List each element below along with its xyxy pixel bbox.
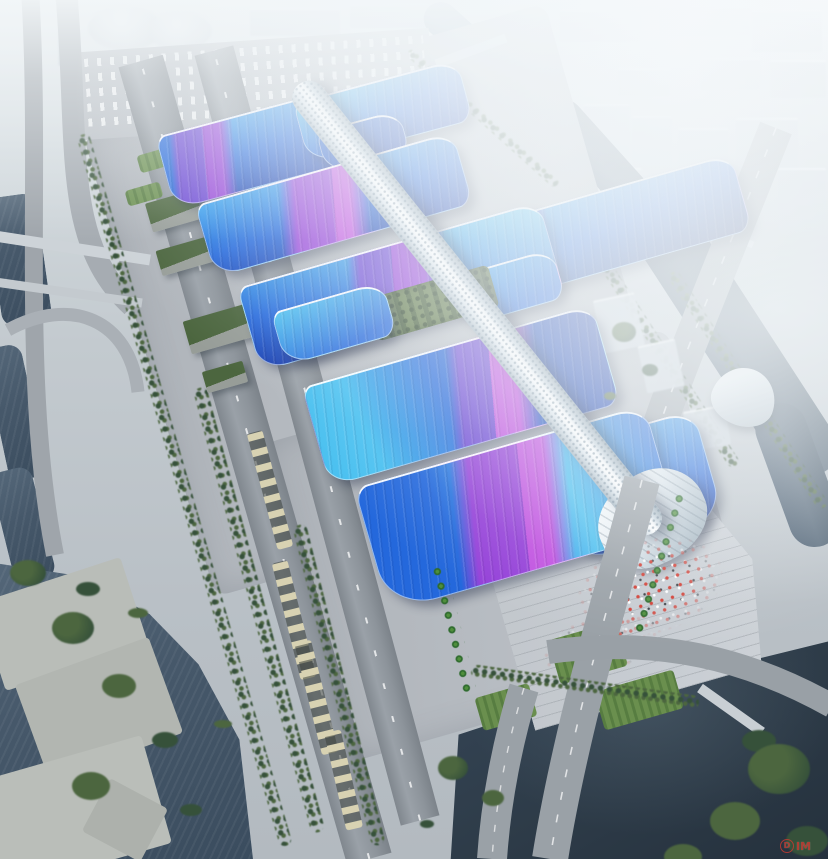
tree-grove	[52, 612, 94, 644]
watermark-logo-icon: D	[780, 839, 794, 853]
watermark: D IM	[780, 839, 811, 853]
tree-grove	[438, 756, 468, 780]
tree-grove	[612, 322, 636, 342]
tree-grove	[10, 560, 46, 586]
tree-grove	[748, 744, 810, 794]
watermark-text: IM	[796, 840, 811, 853]
aerial-render-scene: D IM	[0, 0, 828, 859]
